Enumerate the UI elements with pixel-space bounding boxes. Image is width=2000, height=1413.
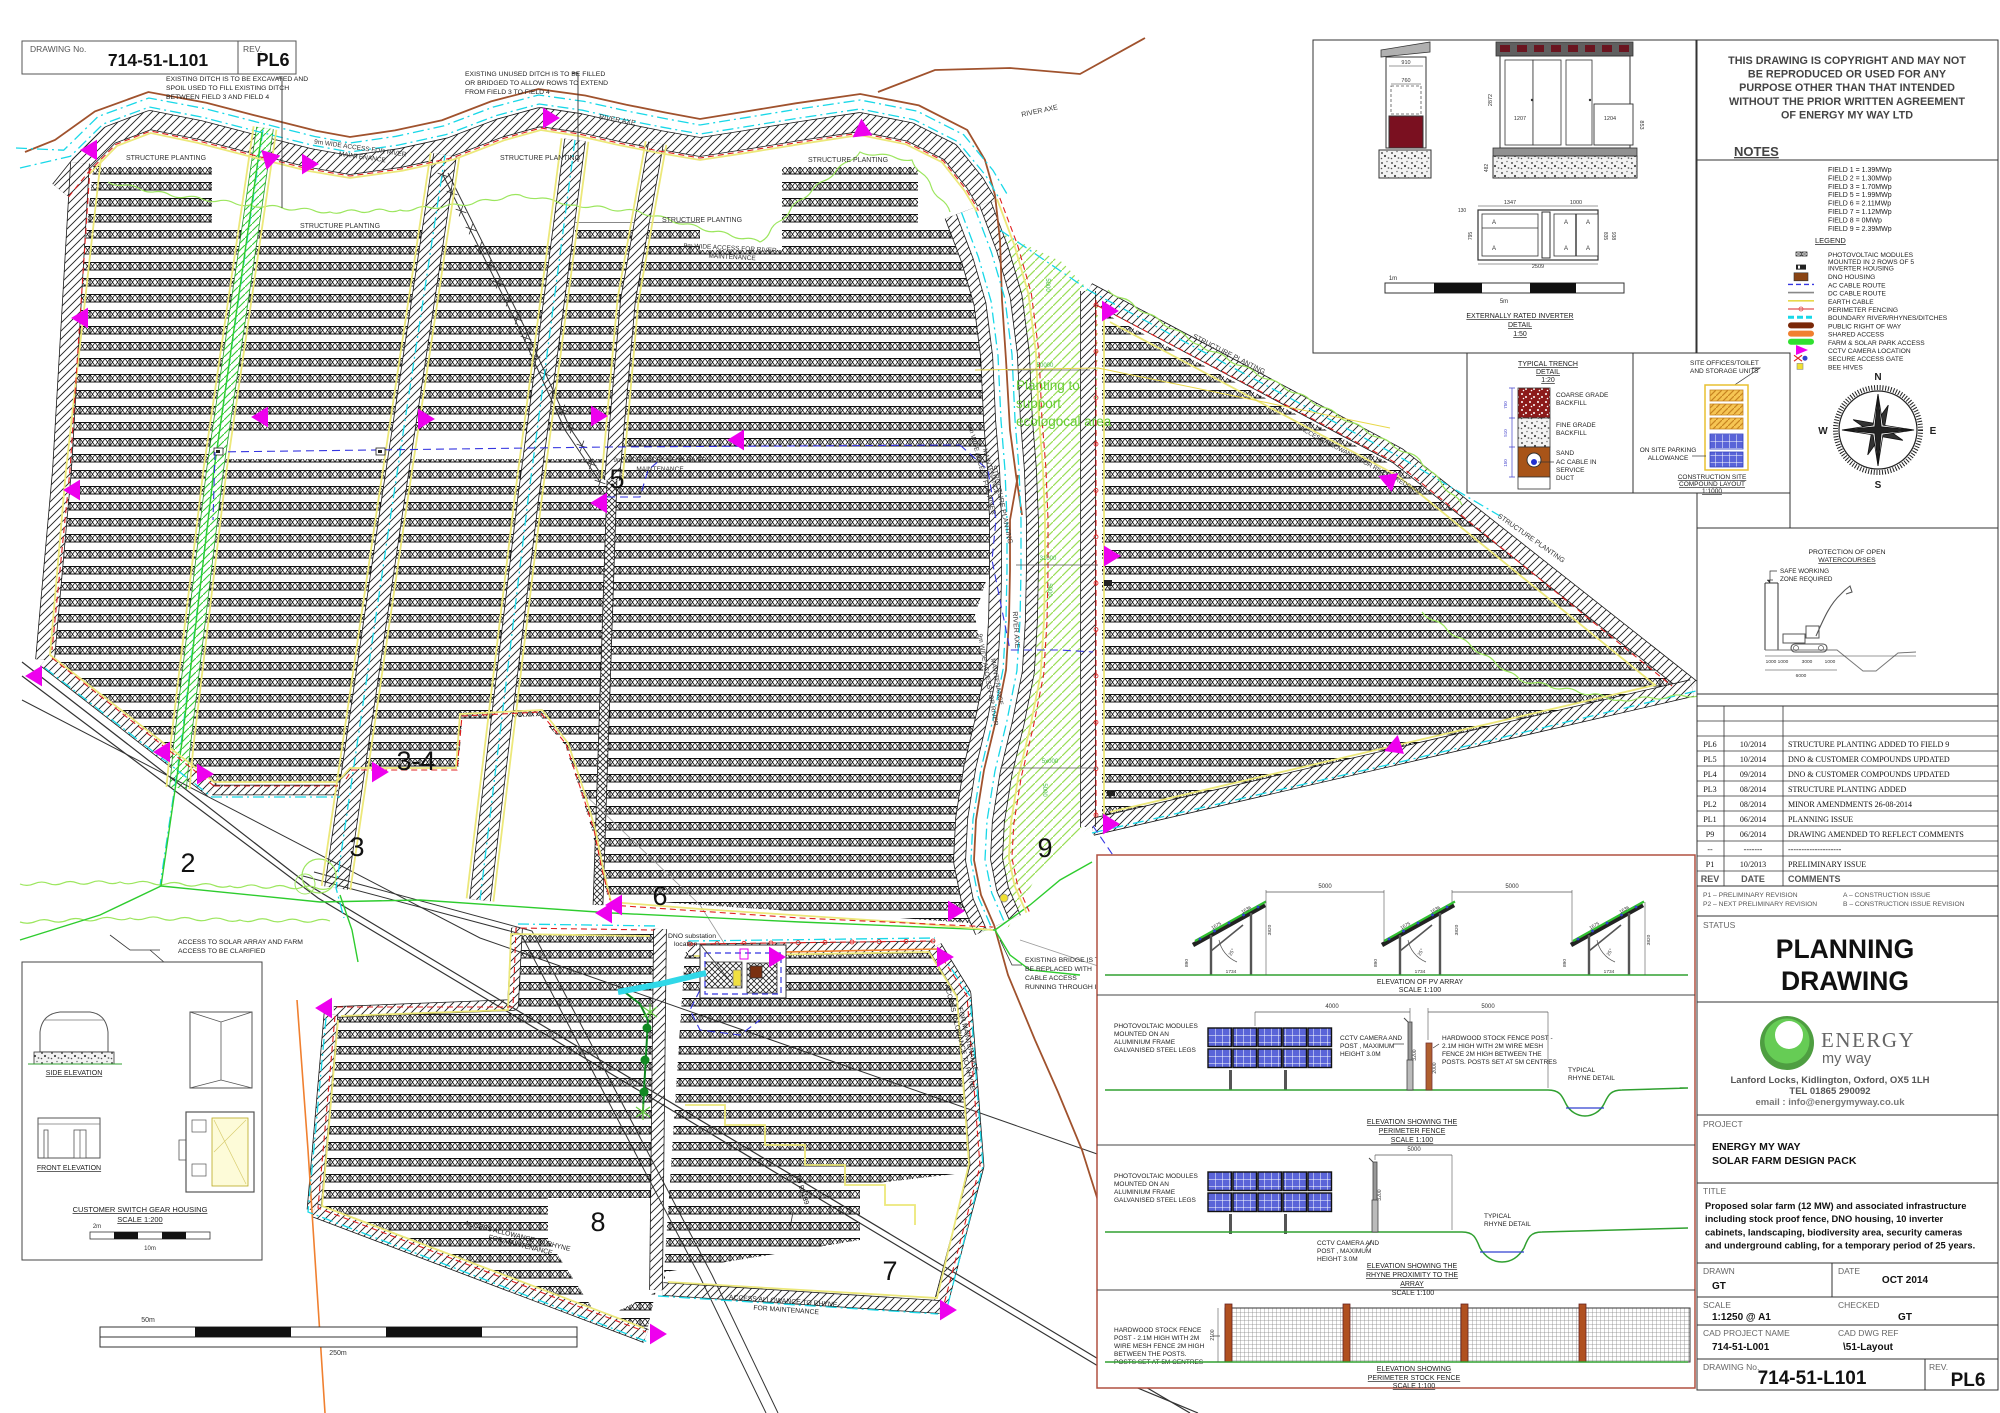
- svg-text:1734: 1734: [1604, 969, 1615, 975]
- svg-text:B – CONSTRUCTION ISSUE REV: B – CONSTRUCTION ISSUE REVISION: [1843, 901, 1965, 908]
- svg-text:5000: 5000: [1041, 783, 1047, 797]
- svg-text:STRUCTURE PLANTING: STRUCTURE PLANTING: [126, 155, 206, 162]
- svg-text:5000: 5000: [1407, 1147, 1421, 1153]
- svg-text:08/2014: 08/2014: [1740, 785, 1766, 794]
- svg-text:853: 853: [1638, 120, 1644, 129]
- svg-text:8: 8: [590, 1207, 605, 1237]
- svg-text:50m: 50m: [141, 1317, 155, 1324]
- svg-text:ARRAY: ARRAY: [1400, 1281, 1424, 1288]
- svg-text:3820: 3820: [1646, 934, 1652, 945]
- svg-text:SAND: SAND: [1556, 450, 1574, 457]
- svg-text:EXISTING UNUSED DITCH IS TO BE: EXISTING UNUSED DITCH IS TO BE FILLED: [465, 71, 605, 78]
- svg-text:PLANNING: PLANNING: [1776, 934, 1914, 964]
- svg-text:SCALE 1:100: SCALE 1:100: [1399, 987, 1442, 994]
- svg-text:email : info@energymyway.co.uk: email : info@energymyway.co.uk: [1756, 1097, 1906, 1108]
- svg-text:OF ENERGY MY WAY LTD: OF ENERGY MY WAY LTD: [1781, 109, 1913, 121]
- svg-text:CABLE ACCESS: CABLE ACCESS: [1025, 975, 1077, 982]
- svg-text:08/2014: 08/2014: [1740, 800, 1766, 809]
- svg-text:REV: REV: [1701, 874, 1720, 884]
- svg-text:3: 3: [349, 832, 364, 862]
- svg-text:PL1: PL1: [1703, 815, 1716, 824]
- svg-text:4000: 4000: [1325, 1004, 1339, 1010]
- svg-text:1000: 1000: [1778, 659, 1789, 665]
- svg-text:SIDE ELEVATION: SIDE ELEVATION: [46, 1070, 103, 1077]
- svg-text:FIELD 9 = 2.39MWp: FIELD 9 = 2.39MWp: [1828, 226, 1892, 233]
- svg-text:STRUCTURE PLANTING: STRUCTURE PLANTING: [808, 157, 888, 164]
- svg-text:DATE: DATE: [1838, 1266, 1860, 1276]
- svg-text:06/2014: 06/2014: [1740, 815, 1766, 824]
- svg-text:EXISTING DITCH IS TO BE EXCAVA: EXISTING DITCH IS TO BE EXCAVATED AND: [166, 76, 308, 83]
- svg-text:POST , MAXIMUM: POST , MAXIMUM: [1317, 1248, 1371, 1255]
- svg-text:250m: 250m: [329, 1350, 347, 1357]
- svg-text:A: A: [1492, 246, 1496, 252]
- svg-text:910: 910: [1401, 60, 1410, 66]
- svg-text:50000: 50000: [1037, 363, 1054, 369]
- svg-text:SPOIL USED TO FILL EXISTING DI: SPOIL USED TO FILL EXISTING DITCH: [166, 85, 289, 92]
- svg-text:AC CABLE IN: AC CABLE IN: [1556, 459, 1597, 466]
- svg-text:2100: 2100: [1210, 1329, 1216, 1340]
- svg-text:890: 890: [1184, 959, 1190, 967]
- svg-text:SAFE WORKING: SAFE WORKING: [1780, 568, 1829, 575]
- svg-text:POST , MAXIMUM: POST , MAXIMUM: [1340, 1043, 1394, 1050]
- svg-text:890: 890: [1562, 959, 1568, 967]
- svg-text:ZONE REQUIRED: ZONE REQUIRED: [1780, 576, 1833, 583]
- svg-text:ALUMINIUM FRAME: ALUMINIUM FRAME: [1114, 1039, 1176, 1046]
- svg-text:including stock proof fence, D: including stock proof fence, DNO housing…: [1705, 1214, 1944, 1224]
- svg-text:3200: 3200: [1377, 1189, 1383, 1200]
- svg-text:PERIMETER STOCK FENCE: PERIMETER STOCK FENCE: [1368, 1375, 1461, 1382]
- svg-text:OR BRIDGED TO ALLOW ROWS TO EX: OR BRIDGED TO ALLOW ROWS TO EXTEND: [465, 80, 608, 87]
- svg-text:3820: 3820: [1454, 924, 1460, 935]
- svg-text:W: W: [1818, 426, 1828, 437]
- svg-text:SOLAR FARM DESIGN PACK: SOLAR FARM DESIGN PACK: [1712, 1155, 1857, 1167]
- svg-text:5000: 5000: [1318, 884, 1332, 890]
- svg-text:DRAWING No.: DRAWING No.: [30, 44, 86, 54]
- svg-text:A: A: [1586, 220, 1590, 226]
- svg-text:FIELD 8 = 0MWp: FIELD 8 = 0MWp: [1828, 217, 1882, 224]
- svg-text:CAD PROJECT NAME: CAD PROJECT NAME: [1703, 1328, 1790, 1338]
- svg-text:GALVANISED STEEL LEGS: GALVANISED STEEL LEGS: [1114, 1047, 1197, 1054]
- svg-text:HARDWOOD STOCK FENCE: HARDWOOD STOCK FENCE: [1114, 1327, 1202, 1334]
- svg-text:5000: 5000: [1046, 583, 1052, 597]
- svg-text:my way: my way: [1822, 1051, 1872, 1067]
- svg-text:1347: 1347: [1504, 200, 1516, 206]
- svg-text:3-4: 3-4: [396, 746, 435, 776]
- svg-text:PHOTOVOLTAIC MODULES: PHOTOVOLTAIC MODULES: [1828, 252, 1914, 259]
- svg-text:SHARED ACCESS: SHARED ACCESS: [1828, 332, 1885, 339]
- svg-text:ALUMINIUM FRAME: ALUMINIUM FRAME: [1114, 1189, 1176, 1196]
- svg-text:1:50: 1:50: [1513, 331, 1527, 338]
- svg-text:CUSTOMER SWITCH GEAR HOUSING: CUSTOMER SWITCH GEAR HOUSING: [73, 1205, 208, 1214]
- svg-text:EXISTING BRIDGE IS TO: EXISTING BRIDGE IS TO: [1025, 957, 1104, 964]
- svg-text:DETAIL: DETAIL: [1508, 322, 1532, 329]
- svg-text:PERIMETER FENCE: PERIMETER FENCE: [1379, 1128, 1446, 1135]
- svg-text:DNO & CUSTOMER COMPOUNDS UPDAT: DNO & CUSTOMER COMPOUNDS UPDATED: [1788, 770, 1950, 779]
- svg-text:A – CONSTRUCTION ISSUE: A – CONSTRUCTION ISSUE: [1843, 892, 1931, 899]
- svg-text:7: 7: [882, 1256, 897, 1286]
- svg-text:1:20: 1:20: [1541, 377, 1555, 384]
- svg-text:10m: 10m: [144, 1246, 156, 1252]
- svg-text:795: 795: [1468, 232, 1474, 241]
- svg-text:cabinets, landscaping, biodive: cabinets, landscaping, biodiversity area…: [1705, 1227, 1962, 1237]
- svg-text:STRUCTURE PLANTING ADDED: STRUCTURE PLANTING ADDED: [1788, 785, 1906, 794]
- svg-text:DUCT: DUCT: [1556, 475, 1574, 482]
- svg-text:714-51-L101: 714-51-L101: [1758, 1368, 1867, 1389]
- svg-text:482: 482: [1484, 164, 1490, 173]
- svg-text:PLANNING ISSUE: PLANNING ISSUE: [1788, 815, 1853, 824]
- svg-text:10/2013: 10/2013: [1740, 860, 1766, 869]
- svg-text:FENCE 2M HIGH BETWEEN THE: FENCE 2M HIGH BETWEEN THE: [1442, 1051, 1542, 1058]
- svg-text:P1: P1: [1706, 860, 1714, 869]
- svg-text:TITLE: TITLE: [1703, 1186, 1726, 1196]
- svg-text:1:1250 @ A1: 1:1250 @ A1: [1712, 1312, 1771, 1323]
- svg-text:P1 – PRELIMINARY REVISION: P1 – PRELIMINARY REVISION: [1703, 892, 1798, 899]
- svg-text:PL6: PL6: [1951, 1370, 1986, 1391]
- svg-text:PURPOSE OTHER THAN THAT INTEND: PURPOSE OTHER THAN THAT INTENDED: [1739, 82, 1955, 94]
- svg-text:DRAWING: DRAWING: [1781, 966, 1909, 996]
- svg-text:6000: 6000: [1796, 673, 1807, 679]
- svg-text:BOUNDARY RIVER/RHYNES/DITCHES: BOUNDARY RIVER/RHYNES/DITCHES: [1828, 315, 1948, 322]
- svg-text:5m: 5m: [1500, 299, 1508, 305]
- svg-text:SCALE 1:100: SCALE 1:100: [1392, 1290, 1435, 1297]
- svg-text:BETWEEN FIELD 3 AND FIELD 4: BETWEEN FIELD 3 AND FIELD 4: [166, 94, 269, 101]
- svg-text:ENERGY: ENERGY: [1821, 1028, 1915, 1052]
- svg-text:STRUCTURE PLANTING: STRUCTURE PLANTING: [500, 155, 580, 162]
- svg-text:ELEVATION SHOWING THE: ELEVATION SHOWING THE: [1367, 1263, 1458, 1270]
- svg-text:CAD DWG REF: CAD DWG REF: [1838, 1328, 1898, 1338]
- svg-text:GT: GT: [1712, 1281, 1726, 1292]
- svg-text:GT: GT: [1898, 1312, 1912, 1323]
- svg-text:WIRE MESH FENCE 2M HIGH: WIRE MESH FENCE 2M HIGH: [1114, 1343, 1205, 1350]
- svg-text:RHYNE PROXIMITY TO THE: RHYNE PROXIMITY TO THE: [1366, 1272, 1458, 1279]
- svg-text:714-51-L101: 714-51-L101: [108, 50, 208, 70]
- svg-text:DNO HOUSING: DNO HOUSING: [1828, 274, 1875, 281]
- svg-text:3000: 3000: [1802, 659, 1813, 665]
- svg-text:BE REPRODUCED OR USED FOR ANY: BE REPRODUCED OR USED FOR ANY: [1748, 69, 1947, 81]
- svg-text:SCALE: SCALE: [1703, 1300, 1731, 1310]
- svg-text:938: 938: [1610, 232, 1616, 241]
- svg-text:PL3: PL3: [1703, 785, 1716, 794]
- svg-text:P9: P9: [1706, 830, 1714, 839]
- svg-text:DNO substation: DNO substation: [668, 933, 716, 940]
- svg-text:FIELD 6 = 2.11MWp: FIELD 6 = 2.11MWp: [1828, 201, 1891, 208]
- svg-text:1204: 1204: [1604, 116, 1616, 122]
- svg-text:Lanford Locks, Kidlington, Oxf: Lanford Locks, Kidlington, Oxford, OX5 1…: [1731, 1075, 1930, 1086]
- svg-text:STRUCTURE PLANTING: STRUCTURE PLANTING: [300, 223, 380, 230]
- svg-text:2.1M HIGH WITH 2M WIRE MESH: 2.1M HIGH WITH 2M WIRE MESH: [1442, 1043, 1543, 1050]
- svg-text:P2 – NEXT PRELIMINARY REVI: P2 – NEXT PRELIMINARY REVISION: [1703, 901, 1817, 908]
- svg-text:PUBLIC RIGHT OF WAY: PUBLIC RIGHT OF WAY: [1828, 323, 1902, 330]
- svg-text:ON SITE PARKING: ON SITE PARKING: [1640, 447, 1697, 454]
- svg-text:DETAIL: DETAIL: [1536, 369, 1560, 376]
- svg-text:CONSTRUCTION SITE: CONSTRUCTION SITE: [1678, 474, 1747, 481]
- svg-text:ACCESS TO BE CLARIFIED: ACCESS TO BE CLARIFIED: [178, 948, 265, 955]
- svg-text:--: --: [1707, 845, 1713, 854]
- svg-text:AND STORAGE UNITS: AND STORAGE UNITS: [1690, 368, 1759, 375]
- svg-text:BEE HIVES: BEE HIVES: [1828, 364, 1863, 371]
- svg-text:TYPICAL: TYPICAL: [1484, 1213, 1511, 1220]
- svg-text:DNO & CUSTOMER COMPOUNDS UPDAT: DNO & CUSTOMER COMPOUNDS UPDATED: [1788, 755, 1950, 764]
- svg-text:CCTV CAMERA AND: CCTV CAMERA AND: [1317, 1240, 1379, 1247]
- svg-text:2000: 2000: [1432, 1062, 1438, 1073]
- svg-text:and underground cabling, for a: and underground cabling, for a temporary…: [1705, 1241, 1975, 1251]
- svg-text:1734: 1734: [1415, 969, 1426, 975]
- svg-text:1:1000: 1:1000: [1702, 488, 1722, 495]
- svg-text:ALLOWANCE: ALLOWANCE: [1648, 455, 1689, 462]
- svg-text:S: S: [1875, 480, 1882, 491]
- svg-text:STRUCTURE PLANTING: STRUCTURE PLANTING: [662, 217, 742, 224]
- svg-text:PL4: PL4: [1703, 770, 1716, 779]
- svg-text:PRELIMINARY ISSUE: PRELIMINARY ISSUE: [1788, 860, 1866, 869]
- svg-text:FARM & SOLAR PARK ACCESS: FARM & SOLAR PARK ACCESS: [1828, 340, 1925, 347]
- svg-text:5000: 5000: [1044, 278, 1050, 292]
- svg-text:OCT 2014: OCT 2014: [1882, 1275, 1929, 1286]
- svg-text:Planting to: Planting to: [1016, 378, 1080, 393]
- svg-text:COARSE GRADE: COARSE GRADE: [1556, 392, 1609, 399]
- svg-text:POSTS. POSTS SET AT 5M CENTRE: POSTS. POSTS SET AT 5M CENTRES: [1442, 1059, 1558, 1066]
- svg-text:FRONT ELEVATION: FRONT ELEVATION: [37, 1165, 101, 1172]
- svg-text:MINOR AMENDMENTS 26-08-2014: MINOR AMENDMENTS 26-08-2014: [1788, 800, 1912, 809]
- svg-text:835: 835: [1602, 232, 1608, 241]
- svg-text:BE REPLACED WITH: BE REPLACED WITH: [1025, 966, 1092, 973]
- svg-text:CCTV CAMERA LOCATION: CCTV CAMERA LOCATION: [1828, 348, 1911, 355]
- svg-text:MOUNTED ON AN: MOUNTED ON AN: [1114, 1181, 1169, 1188]
- svg-text:E: E: [1930, 426, 1937, 437]
- svg-text:130: 130: [1458, 208, 1467, 214]
- svg-text:TYPICAL TRENCH: TYPICAL TRENCH: [1518, 361, 1578, 368]
- svg-text:2: 2: [180, 848, 195, 878]
- svg-text:31000: 31000: [1040, 556, 1057, 562]
- svg-text:3200: 3200: [1412, 1049, 1418, 1060]
- svg-text:TYPICAL: TYPICAL: [1568, 1067, 1595, 1074]
- svg-text:1207: 1207: [1514, 116, 1526, 122]
- svg-text:2872: 2872: [1488, 94, 1494, 106]
- svg-text:WITHOUT THE PRIOR WRITTEN AGRE: WITHOUT THE PRIOR WRITTEN AGREEMENT: [1729, 96, 1965, 108]
- svg-text:ELEVATION OF PV ARRAY: ELEVATION OF PV ARRAY: [1377, 979, 1464, 986]
- svg-text:ACCESS TO SOLAR ARRAY AND FARM: ACCESS TO SOLAR ARRAY AND FARM: [178, 939, 303, 946]
- svg-text:FIELD 1 = 1.39MWp: FIELD 1 = 1.39MWp: [1828, 167, 1892, 174]
- svg-text:5x000: 5x000: [1042, 759, 1059, 765]
- svg-text:GALVANISED STEEL LEGS: GALVANISED STEEL LEGS: [1114, 1197, 1197, 1204]
- svg-text:510: 510: [1503, 429, 1508, 437]
- svg-text:RHYNE DETAIL: RHYNE DETAIL: [1568, 1075, 1615, 1082]
- svg-text:TEL 01865 290092: TEL 01865 290092: [1789, 1086, 1870, 1097]
- svg-text:SCALE 1:100: SCALE 1:100: [1393, 1383, 1436, 1390]
- svg-text:CCTV CAMERA AND: CCTV CAMERA AND: [1340, 1035, 1402, 1042]
- svg-text:FIELD 7 = 1.12MWp: FIELD 7 = 1.12MWp: [1828, 209, 1892, 216]
- svg-text:CHECKED: CHECKED: [1838, 1300, 1880, 1310]
- svg-text:WATERCOURSES: WATERCOURSES: [1818, 557, 1876, 564]
- svg-text:1000: 1000: [1570, 200, 1582, 206]
- svg-text:09/2014: 09/2014: [1740, 770, 1766, 779]
- svg-text:760: 760: [1401, 78, 1410, 84]
- svg-text:location: location: [674, 941, 698, 948]
- svg-text:714-51-L001: 714-51-L001: [1712, 1342, 1770, 1353]
- svg-text:Proposed solar farm (12 MW) an: Proposed solar farm (12 MW) and associat…: [1705, 1201, 1966, 1211]
- svg-text:06/2014: 06/2014: [1740, 830, 1766, 839]
- svg-text:SECURE ACCESS GATE: SECURE ACCESS GATE: [1828, 356, 1904, 363]
- svg-text:10/2014: 10/2014: [1740, 755, 1766, 764]
- svg-text:LEGEND: LEGEND: [1815, 236, 1846, 245]
- svg-text:COMPOUND LAYOUT: COMPOUND LAYOUT: [1679, 481, 1745, 488]
- svg-text:STRUCTURE PLANTING ADDED TO FI: STRUCTURE PLANTING ADDED TO FIELD 9: [1788, 740, 1949, 749]
- svg-text:\51-Layout: \51-Layout: [1843, 1342, 1894, 1353]
- svg-text:PL5: PL5: [1703, 755, 1716, 764]
- svg-text:ecologocal area: ecologocal area: [1016, 414, 1112, 429]
- svg-text:SCALE 1:100: SCALE 1:100: [1391, 1137, 1434, 1144]
- svg-text:1734: 1734: [1226, 969, 1237, 975]
- svg-text:FIELD 2 = 1.30MWp: FIELD 2 = 1.30MWp: [1828, 175, 1892, 182]
- svg-text:PHOTOVOLTAIC MODULES: PHOTOVOLTAIC MODULES: [1114, 1173, 1198, 1180]
- svg-text:STATUS: STATUS: [1703, 920, 1736, 930]
- svg-text:DRAWING AMENDED TO REFLECT COM: DRAWING AMENDED TO REFLECT COMMENTS: [1788, 830, 1964, 839]
- svg-text:BACKFILL: BACKFILL: [1556, 400, 1587, 407]
- svg-text:FIELD 3 = 1.70MWp: FIELD 3 = 1.70MWp: [1828, 184, 1892, 191]
- svg-text:BETWEEN THE POSTS.: BETWEEN THE POSTS.: [1114, 1351, 1187, 1358]
- svg-text:A: A: [1586, 246, 1590, 252]
- svg-text:INVERTER HOUSING: INVERTER HOUSING: [1828, 266, 1894, 273]
- svg-text:REV.: REV.: [1929, 1362, 1948, 1372]
- svg-text:THIS DRAWING IS COPYRIGHT AND: THIS DRAWING IS COPYRIGHT AND MAY NOT: [1728, 55, 1966, 67]
- svg-text:5000: 5000: [1505, 884, 1519, 890]
- svg-text:DRAWN: DRAWN: [1703, 1266, 1735, 1276]
- svg-text:A: A: [1564, 220, 1568, 226]
- svg-text:10/2014: 10/2014: [1740, 740, 1766, 749]
- svg-text:890: 890: [1373, 959, 1379, 967]
- svg-text:750: 750: [1503, 401, 1508, 409]
- svg-text:HEIGHT 3.0M: HEIGHT 3.0M: [1340, 1051, 1381, 1058]
- svg-text:POST - 2.1M HIGH WITH 2M: POST - 2.1M HIGH WITH 2M: [1114, 1335, 1199, 1342]
- svg-text:HEIGHT 3.0M: HEIGHT 3.0M: [1317, 1256, 1358, 1263]
- svg-text:1000: 1000: [1766, 659, 1777, 665]
- svg-text:N: N: [1874, 372, 1881, 383]
- svg-text:ELEVATION SHOWING: ELEVATION SHOWING: [1377, 1366, 1451, 1373]
- svg-text:9: 9: [1037, 833, 1052, 863]
- svg-text:A: A: [1564, 246, 1568, 252]
- svg-text:RUNNING THROUGH IT.: RUNNING THROUGH IT.: [1025, 984, 1102, 991]
- svg-text:DATE: DATE: [1741, 874, 1765, 884]
- svg-text:-------: -------: [1744, 845, 1763, 854]
- svg-text:DC CABLE ROUTE: DC CABLE ROUTE: [1828, 291, 1886, 298]
- svg-text:RHYNE DETAIL: RHYNE DETAIL: [1484, 1221, 1531, 1228]
- svg-text:COMMENTS: COMMENTS: [1788, 874, 1841, 884]
- svg-text:9m WIDE ACCESS FOR RIVER: 9m WIDE ACCESS FOR RIVER: [613, 457, 706, 464]
- svg-text:FINE GRADE: FINE GRADE: [1556, 422, 1596, 429]
- svg-text:--------------------: --------------------: [1788, 845, 1842, 854]
- svg-text:5: 5: [609, 464, 624, 494]
- svg-text:PROTECTION OF OPEN: PROTECTION OF OPEN: [1808, 549, 1885, 556]
- svg-text:FIELD 5 = 1.99MWp: FIELD 5 = 1.99MWp: [1828, 192, 1892, 199]
- svg-text:2m: 2m: [93, 1224, 101, 1230]
- svg-text:150: 150: [1503, 459, 1508, 467]
- svg-text:3820: 3820: [1267, 924, 1273, 935]
- svg-text:EXTERNALLY RATED INVERTER: EXTERNALLY RATED INVERTER: [1466, 313, 1573, 320]
- svg-text:DRAWING No.: DRAWING No.: [1703, 1362, 1759, 1372]
- svg-text:PL6: PL6: [256, 50, 289, 70]
- svg-text:PHOTOVOLTAIC MODULES: PHOTOVOLTAIC MODULES: [1114, 1023, 1198, 1030]
- svg-text:5000: 5000: [1481, 1004, 1495, 1010]
- svg-text:PERIMETER FENCING: PERIMETER FENCING: [1828, 307, 1898, 314]
- svg-text:ELEVATION SHOWING THE: ELEVATION SHOWING THE: [1367, 1119, 1458, 1126]
- svg-text:support: support: [1016, 396, 1061, 411]
- svg-text:SCALE 1:200: SCALE 1:200: [117, 1215, 162, 1224]
- svg-text:ENERGY MY WAY: ENERGY MY WAY: [1712, 1141, 1801, 1153]
- svg-text:PROJECT: PROJECT: [1703, 1119, 1743, 1129]
- svg-text:1m: 1m: [1389, 276, 1397, 282]
- svg-text:PL6: PL6: [1703, 740, 1716, 749]
- svg-text:MOUNTED ON AN: MOUNTED ON AN: [1114, 1031, 1169, 1038]
- svg-text:SERVICE: SERVICE: [1556, 467, 1585, 474]
- svg-text:SITE OFFICES/TOILET: SITE OFFICES/TOILET: [1690, 360, 1759, 367]
- svg-text:EARTH CABLE: EARTH CABLE: [1828, 299, 1874, 306]
- svg-text:NOTES: NOTES: [1734, 144, 1779, 159]
- svg-text:FROM FIELD 3 TO FIELD 4: FROM FIELD 3 TO FIELD 4: [465, 89, 550, 96]
- svg-text:A: A: [1492, 220, 1496, 226]
- svg-text:6: 6: [652, 881, 667, 911]
- svg-text:2509: 2509: [1532, 264, 1544, 270]
- svg-text:BACKFILL: BACKFILL: [1556, 430, 1587, 437]
- svg-text:HARDWOOD STOCK FENCE POST -: HARDWOOD STOCK FENCE POST -: [1442, 1035, 1553, 1042]
- svg-text:MAINTENANCE: MAINTENANCE: [636, 466, 684, 473]
- svg-text:1000: 1000: [1825, 659, 1836, 665]
- svg-text:PL2: PL2: [1703, 800, 1716, 809]
- svg-text:AC CABLE ROUTE: AC CABLE ROUTE: [1828, 282, 1886, 289]
